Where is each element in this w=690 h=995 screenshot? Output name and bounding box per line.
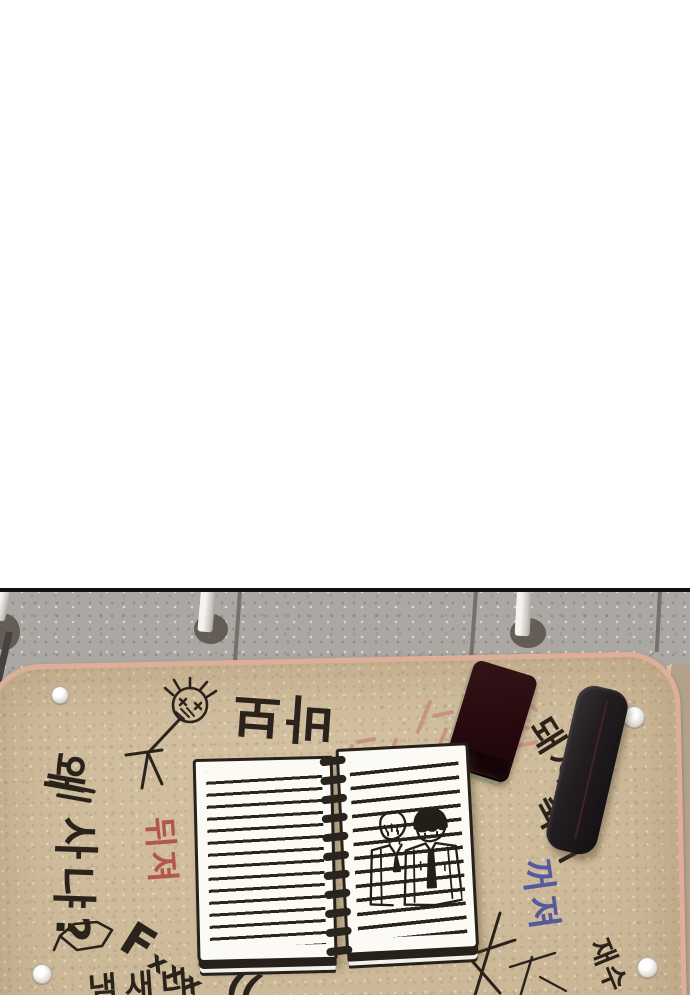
notebook-right-page (336, 742, 480, 956)
webtoon-page: 바보 왜 사냐? 뒤져 돼지 죽어 꺼져 재수 Fxxx 냄새나 (( (0, 0, 690, 995)
graffiti-babo: 바보 (226, 686, 335, 745)
desk-screw (637, 957, 658, 978)
hexagon-scribble (52, 918, 124, 966)
ruled-lines (206, 770, 326, 947)
graffiti-naemsaena: 냄새나 (87, 966, 198, 995)
desk-leg (515, 590, 532, 637)
two-boys-doodle (358, 802, 464, 919)
page-gutter (0, 0, 690, 588)
desk-screw (51, 686, 69, 704)
notebook-left-page (193, 756, 338, 963)
comic-panel: 바보 왜 사냐? 뒤져 돼지 죽어 꺼져 재수 Fxxx 냄새나 (( (0, 588, 690, 995)
graffiti-dwijyeo: 뒤져 (141, 816, 180, 887)
floor-seam (469, 590, 478, 662)
panel-top-border (0, 588, 690, 592)
floor-seam (655, 590, 662, 652)
spiral-notebook (191, 743, 476, 967)
floor-seam (232, 590, 242, 670)
desk-screw (32, 964, 52, 984)
